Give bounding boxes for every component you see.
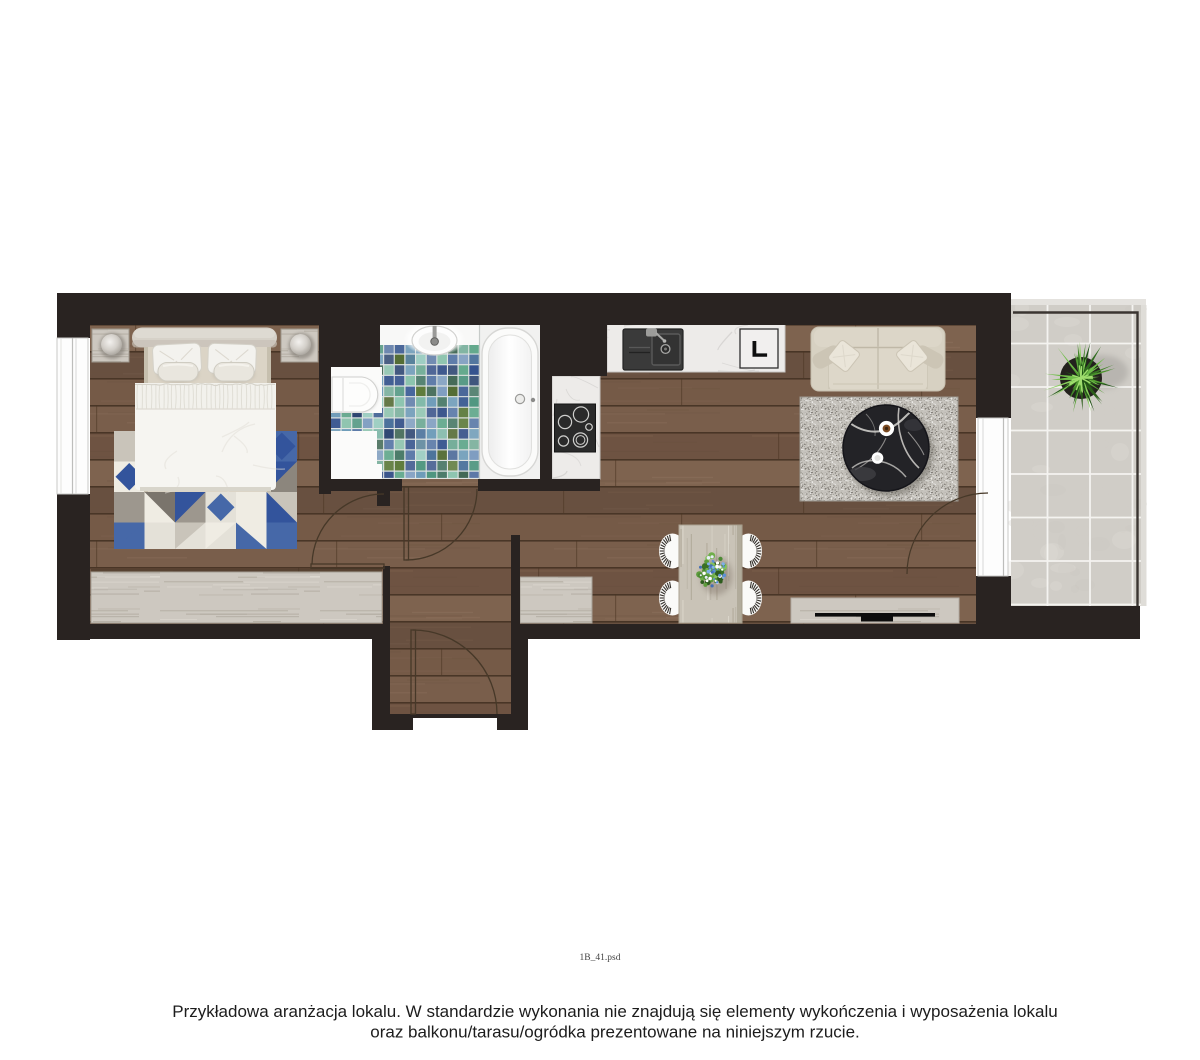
svg-text:Przykładowa aranżacja lokalu.: Przykładowa aranżacja lokalu. W standard… xyxy=(172,1002,1057,1021)
svg-text:1B_41.psd: 1B_41.psd xyxy=(580,953,621,963)
svg-text:oraz balkonu/tarasu/ogródka pr: oraz balkonu/tarasu/ogródka prezentowane… xyxy=(370,1023,860,1042)
